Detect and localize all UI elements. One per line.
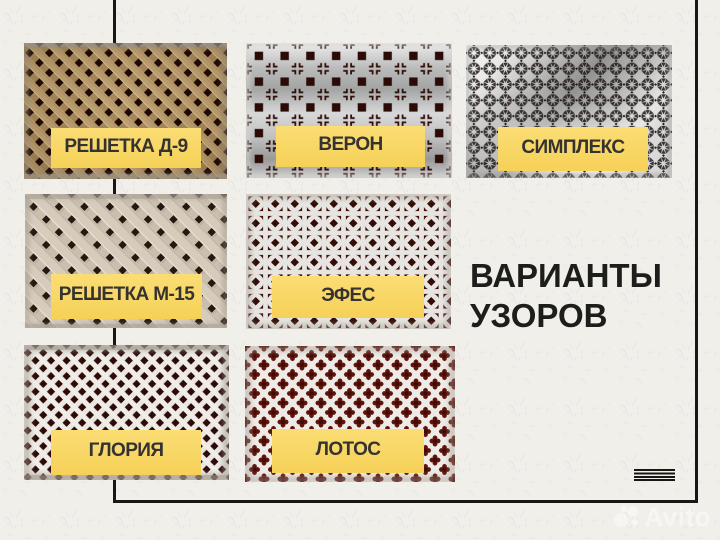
svg-text:Avito: Avito [645, 504, 712, 532]
